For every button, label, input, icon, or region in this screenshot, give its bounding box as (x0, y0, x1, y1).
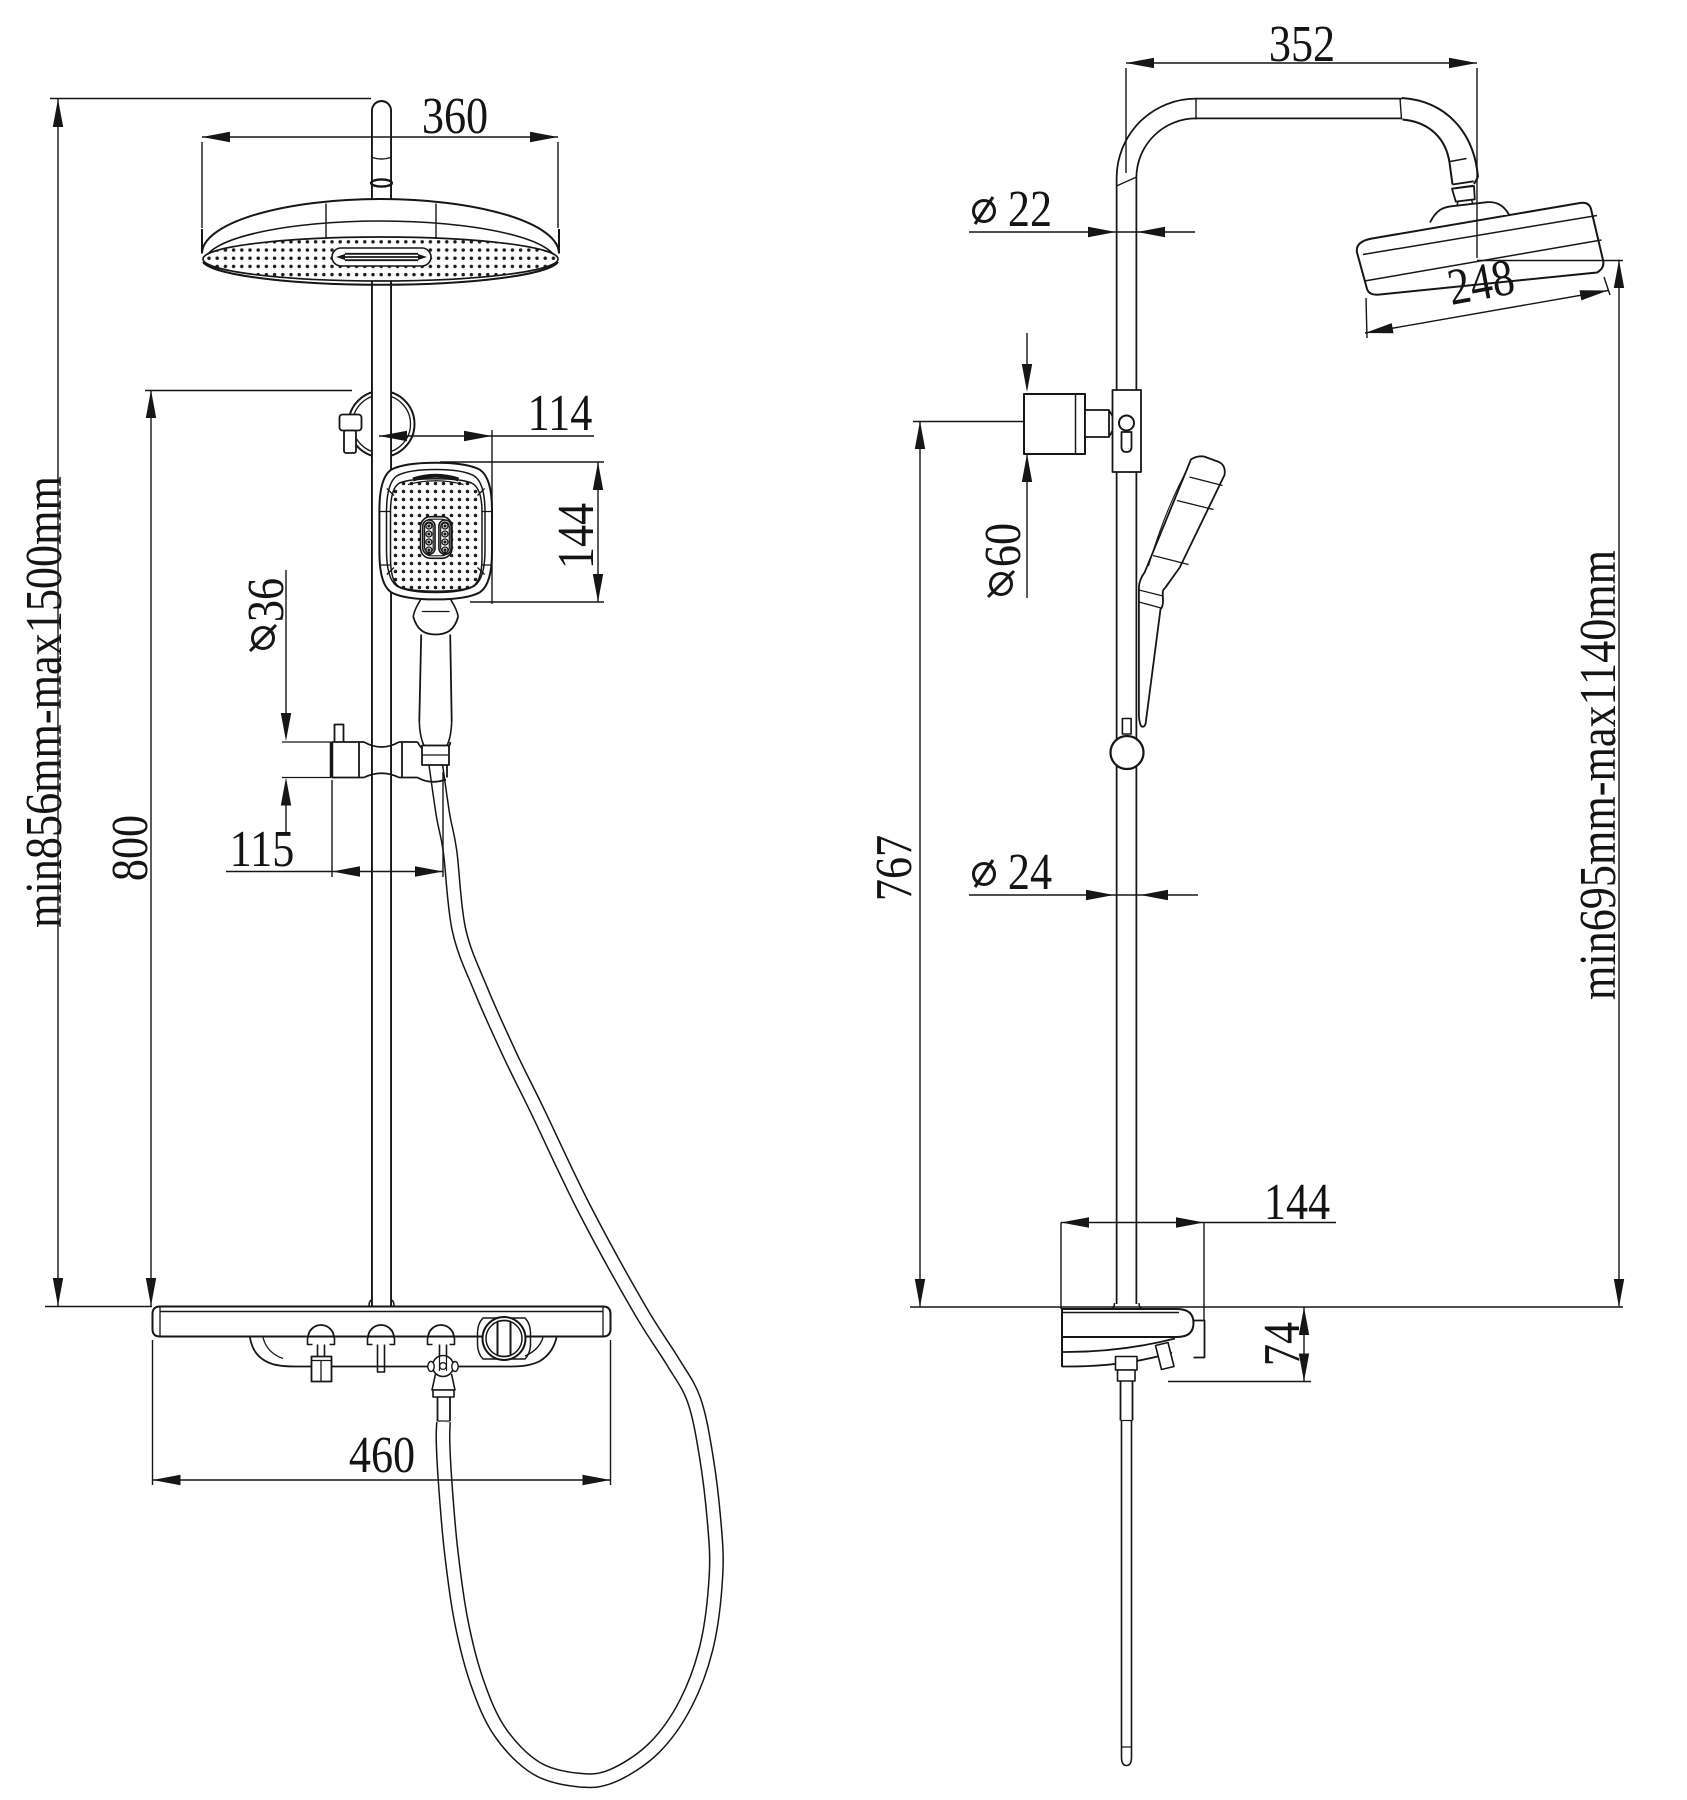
svg-text:115: 115 (230, 821, 295, 878)
svg-text:144: 144 (1264, 1174, 1330, 1231)
svg-text:360: 360 (422, 88, 488, 145)
svg-text:248: 248 (1443, 248, 1519, 316)
svg-text:74: 74 (1254, 1322, 1311, 1366)
svg-text:767: 767 (866, 835, 923, 901)
svg-text:460: 460 (349, 1427, 415, 1484)
svg-text:60: 60 (975, 523, 1032, 567)
svg-text:min695mm-max1140mm: min695mm-max1140mm (1570, 550, 1627, 1000)
svg-text:36: 36 (238, 578, 295, 622)
svg-text:22: 22 (1008, 181, 1052, 238)
svg-text:24: 24 (1008, 844, 1052, 901)
svg-text:min856mm-max1500mm: min856mm-max1500mm (16, 476, 73, 928)
svg-text:114: 114 (528, 385, 593, 442)
svg-text:144: 144 (548, 503, 605, 569)
svg-text:800: 800 (102, 815, 159, 881)
svg-text:352: 352 (1269, 16, 1335, 73)
